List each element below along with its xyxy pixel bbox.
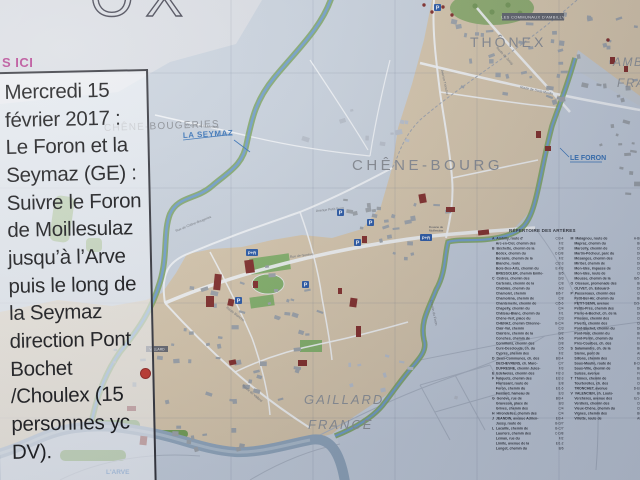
label-thonex: THÔNEX [470, 34, 546, 50]
map-title-fragment: OX [90, 0, 220, 23]
foron-label: LE FORON [570, 155, 606, 162]
photographed-map-panel: P P P P P P P+R P+R LES COMMUNAUX D'AMBI… [0, 0, 640, 480]
label-chene-bourg: CHÊNE-BOURG [352, 157, 503, 174]
svg-text:P: P [436, 6, 440, 12]
street-index-title: RÉPERTOIRE DES ARTÈRES [509, 228, 640, 233]
park-and-ride-icon: P+R [420, 234, 432, 241]
svg-text:P+R: P+R [248, 251, 256, 256]
svg-text:P+R: P+R [422, 236, 430, 241]
label-ambilly: AMBILLY [613, 55, 640, 69]
you-are-here-label: S ICI [2, 55, 33, 70]
douane-label: Moillesulaz [429, 228, 444, 232]
you-are-here-dot [140, 368, 151, 379]
svg-text:LES COMMUNAUX D'AMBILLY: LES COMMUNAUX D'AMBILLY [501, 15, 565, 20]
parking-icon: P [235, 297, 242, 305]
label-gaillard-france: FRANCE [308, 417, 373, 432]
label-ambilly-france: FRANCE [617, 76, 640, 90]
parking-icon: P [354, 239, 361, 247]
street-index-column-left: A Ambilly, route d'C/3-4 Arc-en-Ciel, ch… [492, 237, 564, 452]
itinerary-note: Mercredi 15 février 2017 : Le Foron et l… [0, 69, 157, 480]
index-entry: Longet, chemin duB/6 [492, 447, 564, 452]
park-and-ride-icon: P+R [246, 249, 258, 256]
parking-icon: P [434, 4, 441, 12]
index-entry: Villette, route deA/5 [571, 417, 640, 422]
label-gaillard: GAILLARD [304, 392, 384, 407]
svg-text:P: P [237, 299, 241, 305]
parking-icon: P [302, 281, 309, 289]
street-index: RÉPERTOIRE DES ARTÈRES A Ambilly, route … [492, 228, 640, 468]
street-index-column-right: M Malagnou, route deA-B/5 Mapraz, chemin… [571, 237, 640, 452]
svg-text:P: P [304, 283, 308, 289]
parking-icon: P [367, 219, 374, 227]
communaux-banner: LES COMMUNAUX D'AMBILLY [501, 13, 565, 21]
svg-text:P: P [356, 241, 360, 247]
svg-text:P: P [369, 221, 373, 227]
svg-text:P: P [339, 211, 343, 217]
